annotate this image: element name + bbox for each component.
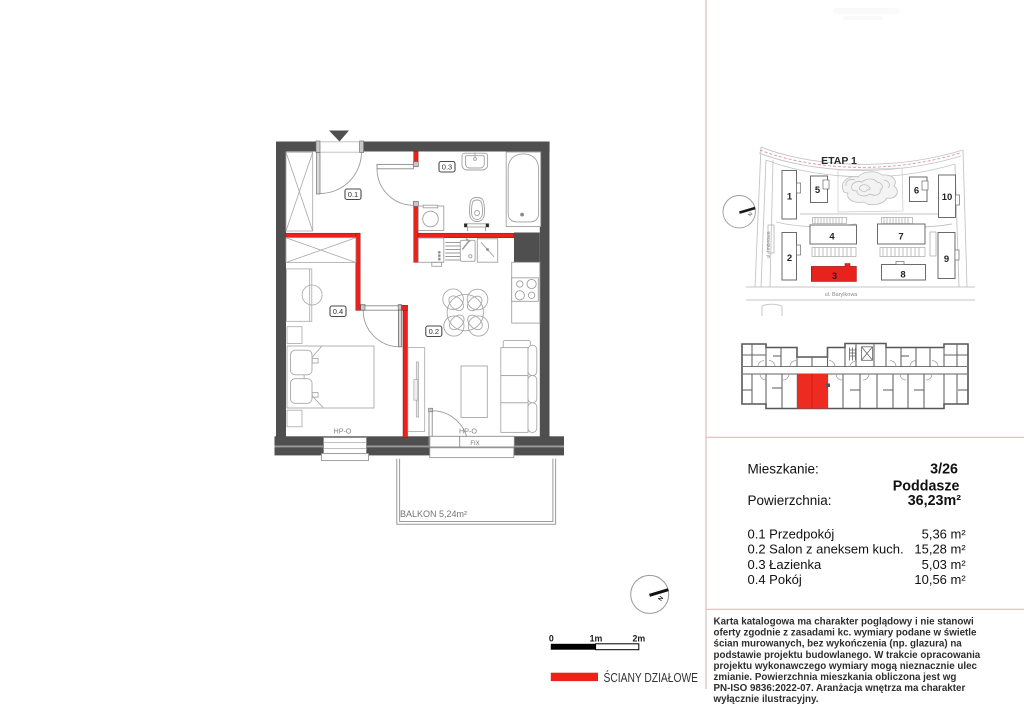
svg-text:ŚCIANY DZIAŁOWE: ŚCIANY DZIAŁOWE bbox=[604, 670, 699, 685]
svg-text:Mieszkanie:: Mieszkanie: bbox=[748, 462, 819, 477]
svg-text:1: 1 bbox=[787, 192, 793, 203]
svg-text:ul. Barylkowa: ul. Barylkowa bbox=[825, 292, 859, 298]
svg-text:ETAP 1: ETAP 1 bbox=[821, 155, 857, 167]
svg-text:5: 5 bbox=[815, 185, 821, 196]
svg-text:10,56 m²: 10,56 m² bbox=[914, 572, 966, 587]
svg-text:2: 2 bbox=[787, 253, 792, 264]
svg-text:4: 4 bbox=[829, 232, 835, 243]
svg-text:0.2: 0.2 bbox=[429, 327, 439, 336]
svg-text:0.4: 0.4 bbox=[333, 307, 343, 316]
svg-text:wyłącznie ilustracyjny.: wyłącznie ilustracyjny. bbox=[713, 694, 819, 705]
svg-text:0: 0 bbox=[549, 633, 554, 643]
svg-text:ścian murowanych, bez wykończ: ścian murowanych, bez wykończenia (np. g… bbox=[714, 639, 963, 650]
svg-text:0.2 Salon z aneksem kuch.: 0.2 Salon z aneksem kuch. bbox=[748, 542, 904, 557]
svg-text:0.4 Pokój: 0.4 Pokój bbox=[748, 572, 802, 587]
svg-text:5,03 m²: 5,03 m² bbox=[922, 557, 967, 572]
svg-text:5,36 m²: 5,36 m² bbox=[922, 527, 967, 542]
svg-text:FIX: FIX bbox=[470, 441, 479, 447]
svg-text:1m: 1m bbox=[590, 633, 603, 643]
svg-text:zmianie. Powierzchnia mieszkan: zmianie. Powierzchnia mieszkania obliczo… bbox=[714, 672, 957, 683]
svg-text:Powierzchnia:: Powierzchnia: bbox=[748, 493, 832, 508]
svg-text:3/26: 3/26 bbox=[930, 462, 958, 478]
svg-text:podstawie projektu budowlanego: podstawie projektu budowlanego. W trakci… bbox=[714, 650, 981, 661]
svg-text:Karta katalogowa ma charakter: Karta katalogowa ma charakter poglądowy … bbox=[714, 617, 975, 628]
svg-text:HP-O: HP-O bbox=[334, 426, 352, 435]
svg-text:7: 7 bbox=[898, 232, 903, 243]
svg-text:BALKON 5,24m²: BALKON 5,24m² bbox=[400, 509, 467, 519]
svg-text:15,28 m²: 15,28 m² bbox=[914, 542, 966, 557]
svg-text:0.3 Łazienka: 0.3 Łazienka bbox=[748, 557, 822, 572]
svg-text:2m: 2m bbox=[632, 633, 645, 643]
svg-text:0.1 Przedpokój: 0.1 Przedpokój bbox=[748, 527, 835, 542]
svg-text:36,23m²: 36,23m² bbox=[908, 493, 961, 509]
svg-text:ul. Imbirowa: ul. Imbirowa bbox=[766, 231, 772, 258]
svg-text:projektu wykonawczego wymiary: projektu wykonawczego wymiary mogą niezn… bbox=[714, 661, 978, 672]
svg-text:oferty zgodnie z zasadami kc.: oferty zgodnie z zasadami kc. wymiary po… bbox=[714, 628, 978, 639]
svg-text:9: 9 bbox=[944, 254, 949, 265]
svg-text:8: 8 bbox=[900, 270, 905, 281]
svg-text:3: 3 bbox=[832, 271, 837, 282]
svg-text:0.3: 0.3 bbox=[442, 163, 452, 172]
svg-text:6: 6 bbox=[914, 186, 919, 197]
svg-text:10: 10 bbox=[942, 192, 953, 203]
svg-text:HP-O: HP-O bbox=[459, 426, 477, 435]
svg-text:0.1: 0.1 bbox=[348, 190, 358, 199]
svg-text:PN-ISO 9836:2022-07. Aranżacja: PN-ISO 9836:2022-07. Aranżacja wnętrza m… bbox=[714, 683, 966, 694]
